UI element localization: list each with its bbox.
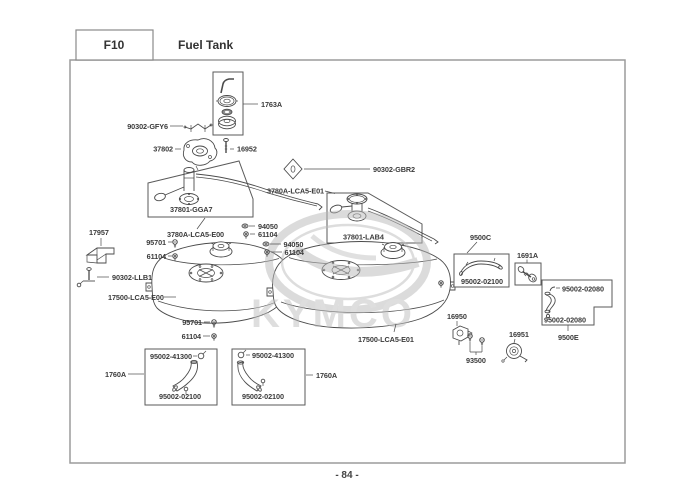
label-1763a: 1763A [261,100,283,109]
label-1760a-right: 1760A [316,371,338,380]
nut-icon [212,334,217,341]
label-17957: 17957 [89,228,109,237]
washer-icon [242,224,248,228]
label-16951: 16951 [509,330,529,339]
label-37801-lab4: 37801-LAB4 [343,233,385,242]
label-61104-b: 61104 [258,230,278,239]
label-95002-02080-b: 95002-02080 [544,316,586,325]
fuel-cap-box-drawing [213,72,243,135]
label-9500c: 9500C [470,233,492,242]
label-93500: 93500 [466,356,486,365]
leader-sender-kit-left [197,218,205,229]
screw-icon [173,240,178,248]
label-16950: 16950 [447,312,467,321]
label-90302-llb1: 90302-LLB1 [112,273,152,282]
hose-kit-box-left: 95002-41300 95002-02100 [145,349,217,405]
label-95002-02080-a: 95002-02080 [562,285,604,294]
label-95002-02100-b: 95002-02100 [242,392,284,401]
label-95002-41300-b: 95002-41300 [252,351,294,360]
label-16952: 16952 [237,145,257,154]
bracket-17957-drawing [87,238,114,263]
label-3780a-lca5-e01: 3780A-LCA5-E01 [267,187,324,196]
page-title: Fuel Tank [178,38,233,52]
parts-catalog-page: F10 Fuel Tank - 84 - [0,0,700,495]
nut-icon [244,232,249,239]
label-17500-lca5-e00: 17500-LCA5-E00 [108,293,164,302]
label-95002-02100-c: 95002-02100 [461,277,503,286]
label-95701-a: 95701 [146,238,166,247]
watermark-text: KYMCO [251,292,415,336]
label-37801-gga7: 37801-GGA7 [170,205,212,214]
cock-16951-drawing [502,339,527,362]
label-1760a-left: 1760A [105,370,127,379]
leader-9500c [467,242,477,253]
label-90302-gbr2: 90302-GBR2 [373,165,415,174]
washer-icon [263,242,269,246]
label-61104-c: 61104 [285,248,305,257]
label-3780a-lca5-e00: 3780A-LCA5-E00 [167,230,224,239]
label-61104-a: 61104 [147,252,167,261]
label-90302-gfy6: 90302-GFY6 [127,122,168,131]
bolt-llb1-drawing [77,268,109,287]
label-95002-02100-a: 95002-02100 [159,392,201,401]
screws-93500-drawing [468,334,485,355]
label-1691a: 1691A [517,251,539,260]
hose-kit-box-9500e: 95002-02080 95002-02080 [542,280,612,325]
label-61104-d: 61104 [182,332,202,341]
label-17500-lca5-e01: 17500-LCA5-E01 [358,335,414,344]
label-95002-41300-a: 95002-41300 [150,352,192,361]
section-code: F10 [104,38,125,52]
label-95701-b: 95701 [182,318,202,327]
label-37802: 37802 [153,145,173,154]
page-number: - 84 - [335,470,358,481]
clip-gbr2-drawing [284,159,370,179]
hose-kit-box-9500c: 95002-02100 [454,254,509,287]
label-9500e: 9500E [558,333,579,342]
hose-kit-box-center: 95002-41300 95002-02100 [232,349,305,405]
cap-flange-drawing [175,139,217,170]
screw-16952-drawing [224,139,234,154]
joint-box-1691a [515,263,541,285]
vent-clip-drawing [170,124,212,132]
valve-16950-drawing [453,321,472,345]
